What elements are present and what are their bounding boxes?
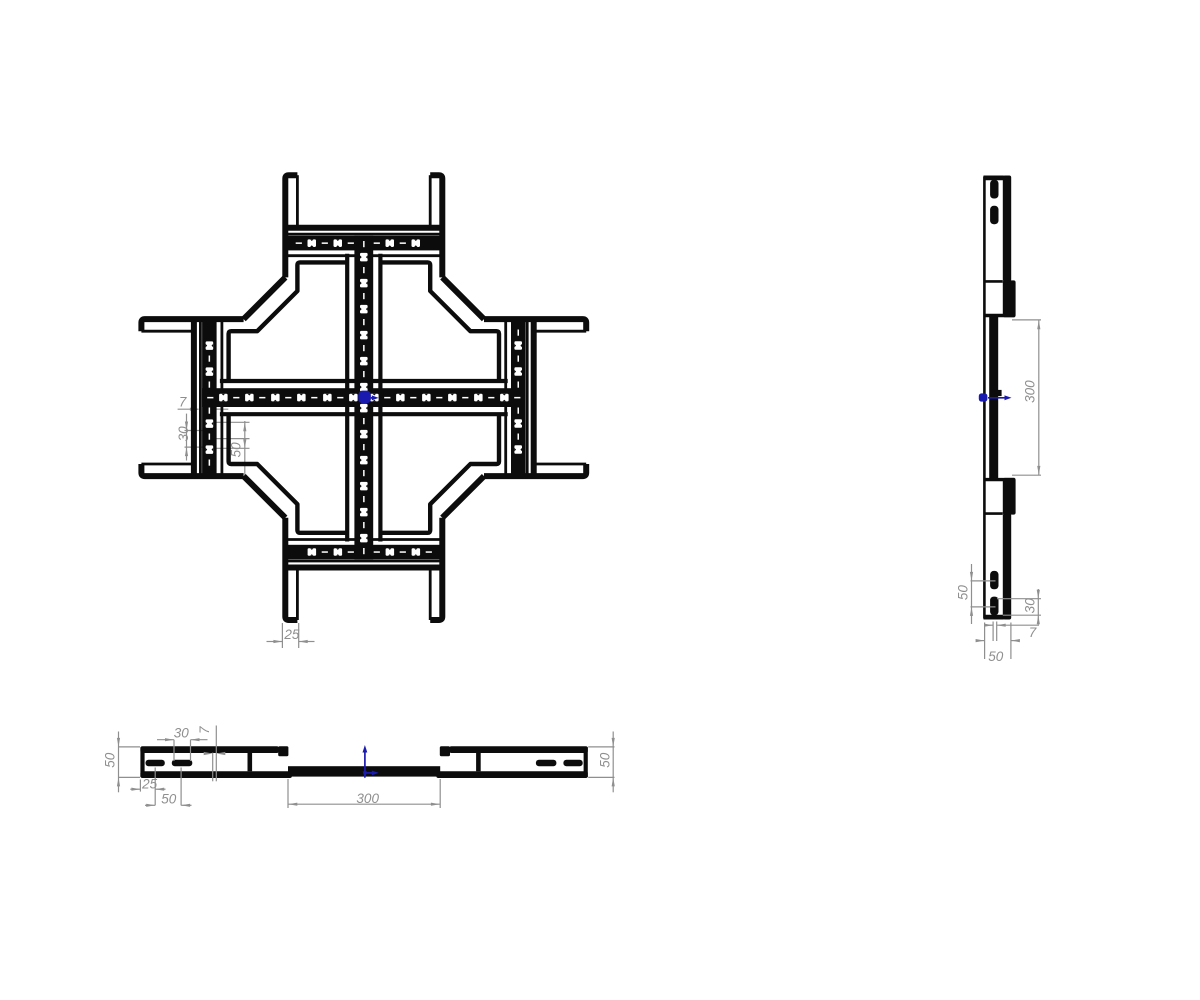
svg-text:7: 7: [197, 726, 212, 734]
svg-text:50: 50: [598, 752, 613, 768]
svg-text:25: 25: [141, 776, 158, 791]
svg-text:50: 50: [955, 585, 970, 601]
svg-text:30: 30: [174, 725, 190, 740]
svg-text:30: 30: [1022, 598, 1037, 614]
svg-text:30: 30: [176, 426, 191, 442]
svg-text:50: 50: [103, 752, 118, 768]
svg-text:300: 300: [1022, 380, 1037, 403]
svg-text:50: 50: [161, 792, 177, 807]
svg-text:50: 50: [988, 649, 1004, 664]
svg-text:300: 300: [356, 791, 379, 806]
svg-text:7: 7: [179, 395, 187, 410]
svg-text:50: 50: [229, 442, 244, 458]
svg-text:7: 7: [1029, 625, 1037, 640]
svg-text:25: 25: [283, 627, 300, 642]
